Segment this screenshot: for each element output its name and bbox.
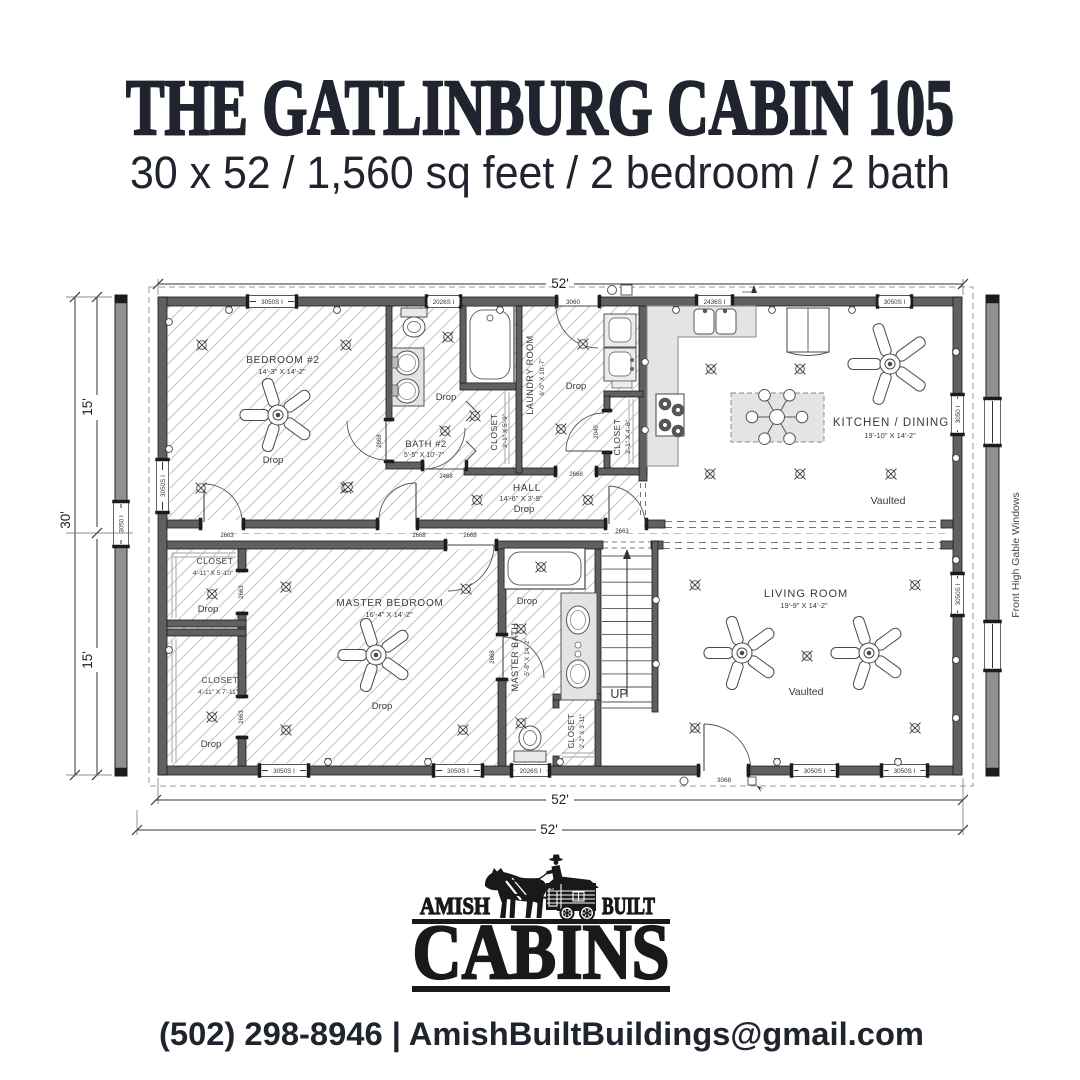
svg-text:(502) 298-8946 | AmishBuiltBui: (502) 298-8946 | AmishBuiltBuildings@gma… xyxy=(159,1016,924,1052)
svg-text:CLOSET: CLOSET xyxy=(489,413,499,450)
svg-text:2040: 2040 xyxy=(594,425,600,439)
svg-text:3068: 3068 xyxy=(717,777,732,784)
svg-text:Drop: Drop xyxy=(517,596,538,607)
svg-text:2663: 2663 xyxy=(220,533,234,539)
svg-text:2'-1" X 5'-9": 2'-1" X 5'-9" xyxy=(502,413,509,448)
svg-text:30 x 52 / 1,560 sq feet / 2 be: 30 x 52 / 1,560 sq feet / 2 bedroom / 2 … xyxy=(130,147,950,198)
svg-text:2468: 2468 xyxy=(439,474,453,480)
svg-text:CLOSET: CLOSET xyxy=(567,713,576,748)
svg-text:3050S I: 3050S I xyxy=(955,583,962,605)
svg-text:52': 52' xyxy=(551,792,569,807)
svg-text:19'-10" X 14'-2": 19'-10" X 14'-2" xyxy=(864,431,916,440)
svg-text:52': 52' xyxy=(551,276,569,291)
svg-text:3050S I: 3050S I xyxy=(261,299,283,306)
svg-text:Drop: Drop xyxy=(201,739,222,750)
svg-text:3050 I: 3050 I xyxy=(955,406,962,424)
svg-text:3060: 3060 xyxy=(566,299,581,306)
svg-text:CLOSET: CLOSET xyxy=(201,675,238,685)
svg-text:KITCHEN / DINING: KITCHEN / DINING xyxy=(833,417,949,429)
svg-text:3050S I: 3050S I xyxy=(273,768,295,775)
svg-text:HALL: HALL xyxy=(513,483,541,494)
svg-text:CLOSET: CLOSET xyxy=(612,418,622,455)
svg-text:BEDROOM #2: BEDROOM #2 xyxy=(246,355,320,366)
svg-text:3050 I: 3050 I xyxy=(118,515,125,533)
svg-text:5'-5" X 10'-7": 5'-5" X 10'-7" xyxy=(404,452,445,459)
svg-text:2668: 2668 xyxy=(377,434,383,448)
svg-text:Drop: Drop xyxy=(198,604,219,615)
svg-text:Vaulted: Vaulted xyxy=(789,686,824,698)
svg-text:4'-11" X 7'-11": 4'-11" X 7'-11" xyxy=(198,689,239,696)
svg-text:2436S I: 2436S I xyxy=(704,299,726,306)
svg-text:14'-6" X 3'-9": 14'-6" X 3'-9" xyxy=(499,494,543,503)
svg-text:Drop: Drop xyxy=(263,455,284,466)
svg-text:3050S I: 3050S I xyxy=(804,768,826,775)
svg-text:14'-3" X 14'-2": 14'-3" X 14'-2" xyxy=(258,367,306,376)
svg-text:Drop: Drop xyxy=(372,701,393,712)
svg-text:UP: UP xyxy=(610,687,627,701)
svg-text:15': 15' xyxy=(80,398,95,416)
svg-text:Vaulted: Vaulted xyxy=(871,495,906,507)
svg-text:Front High Gable Windows: Front High Gable Windows xyxy=(1010,492,1022,617)
svg-text:LAUNDRY ROOM: LAUNDRY ROOM xyxy=(525,335,535,414)
svg-text:BATH #2: BATH #2 xyxy=(405,439,446,450)
svg-text:15': 15' xyxy=(80,651,95,669)
svg-text:2663: 2663 xyxy=(239,585,245,599)
svg-text:2663: 2663 xyxy=(615,529,629,535)
svg-text:2668: 2668 xyxy=(412,533,426,539)
svg-text:Drop: Drop xyxy=(436,392,457,403)
svg-text:3050S I: 3050S I xyxy=(447,768,469,775)
svg-text:LIVING ROOM: LIVING ROOM xyxy=(764,588,848,600)
svg-text:2'-2" X 3'-11": 2'-2" X 3'-11" xyxy=(580,714,586,748)
svg-text:3050S I: 3050S I xyxy=(884,299,906,306)
svg-text:19'-9" X 14'-2": 19'-9" X 14'-2" xyxy=(780,601,828,610)
svg-text:Drop: Drop xyxy=(566,381,587,392)
svg-text:2026S I: 2026S I xyxy=(520,768,542,775)
svg-text:16'-4" X 14'-2": 16'-4" X 14'-2" xyxy=(365,610,413,619)
svg-text:4'-11" X 5'-10": 4'-11" X 5'-10" xyxy=(193,570,234,577)
svg-text:CABINS: CABINS xyxy=(413,908,670,995)
svg-text:MASTER BATH: MASTER BATH xyxy=(510,623,520,692)
svg-text:2668: 2668 xyxy=(569,472,583,478)
svg-text:2668: 2668 xyxy=(463,533,477,539)
svg-text:5'-8" X 14'-2": 5'-8" X 14'-2" xyxy=(524,638,531,676)
svg-text:30': 30' xyxy=(58,511,73,529)
svg-text:THE GATLINBURG CABIN 105: THE GATLINBURG CABIN 105 xyxy=(126,65,954,152)
svg-text:CLOSET: CLOSET xyxy=(196,556,233,566)
svg-text:2668: 2668 xyxy=(490,650,496,664)
svg-text:Drop: Drop xyxy=(514,504,535,515)
svg-text:6'-0" X 10'-7": 6'-0" X 10'-7" xyxy=(539,358,546,396)
svg-text:52': 52' xyxy=(540,822,558,837)
svg-text:3050S I: 3050S I xyxy=(894,768,916,775)
svg-text:2026S I: 2026S I xyxy=(433,299,455,306)
svg-text:3050S I: 3050S I xyxy=(160,475,167,497)
svg-text:2'-1" X 4'-6": 2'-1" X 4'-6" xyxy=(625,419,632,454)
svg-text:2663: 2663 xyxy=(239,710,245,724)
svg-text:MASTER BEDROOM: MASTER BEDROOM xyxy=(336,598,443,609)
